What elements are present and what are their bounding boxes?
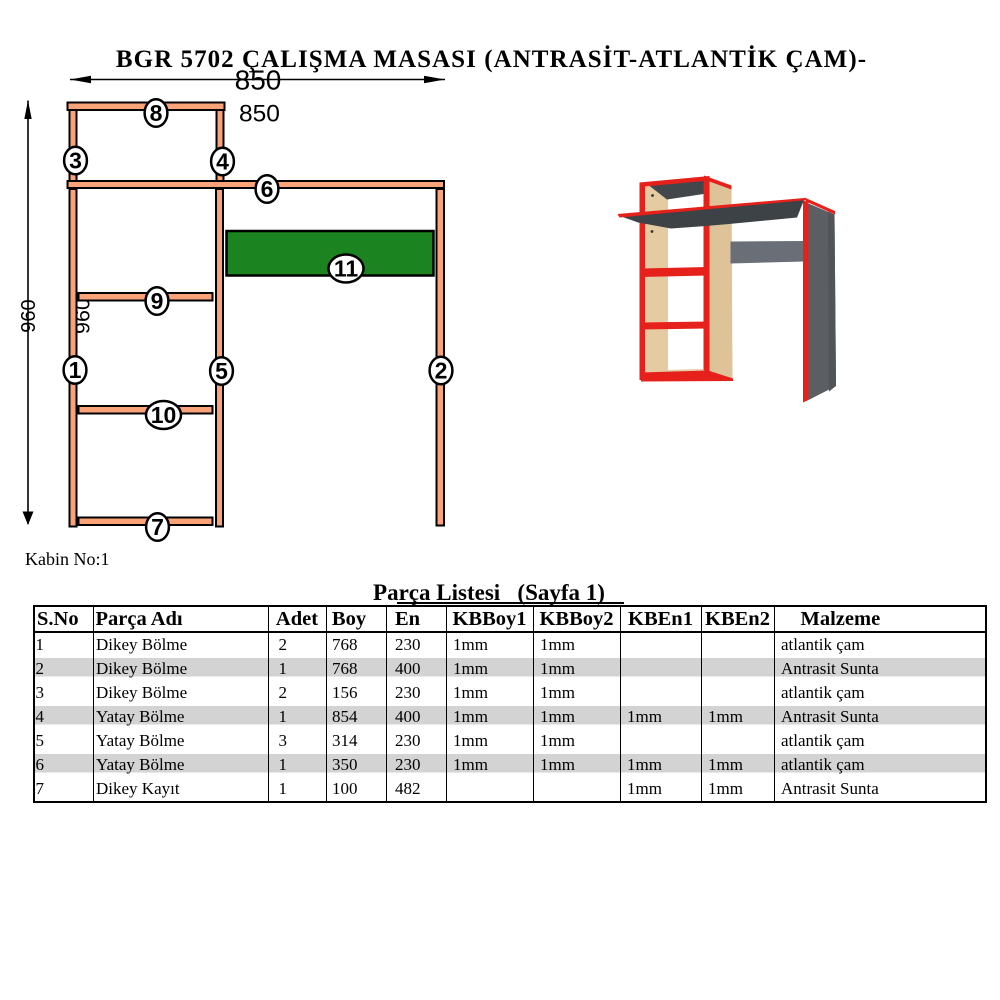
- svg-text:4: 4: [216, 149, 229, 175]
- svg-text:9: 9: [151, 288, 164, 314]
- svg-text:10: 10: [151, 402, 177, 428]
- svg-text:960: 960: [18, 299, 40, 332]
- svg-text:11: 11: [334, 256, 359, 282]
- svg-text:850: 850: [235, 65, 282, 96]
- svg-text:2: 2: [435, 358, 448, 384]
- svg-text:5: 5: [215, 358, 228, 384]
- svg-text:8: 8: [150, 100, 163, 126]
- svg-text:850: 850: [239, 101, 280, 128]
- svg-text:3: 3: [69, 148, 82, 174]
- svg-text:7: 7: [151, 514, 164, 540]
- svg-text:6: 6: [261, 176, 274, 202]
- svg-text:1: 1: [69, 357, 82, 383]
